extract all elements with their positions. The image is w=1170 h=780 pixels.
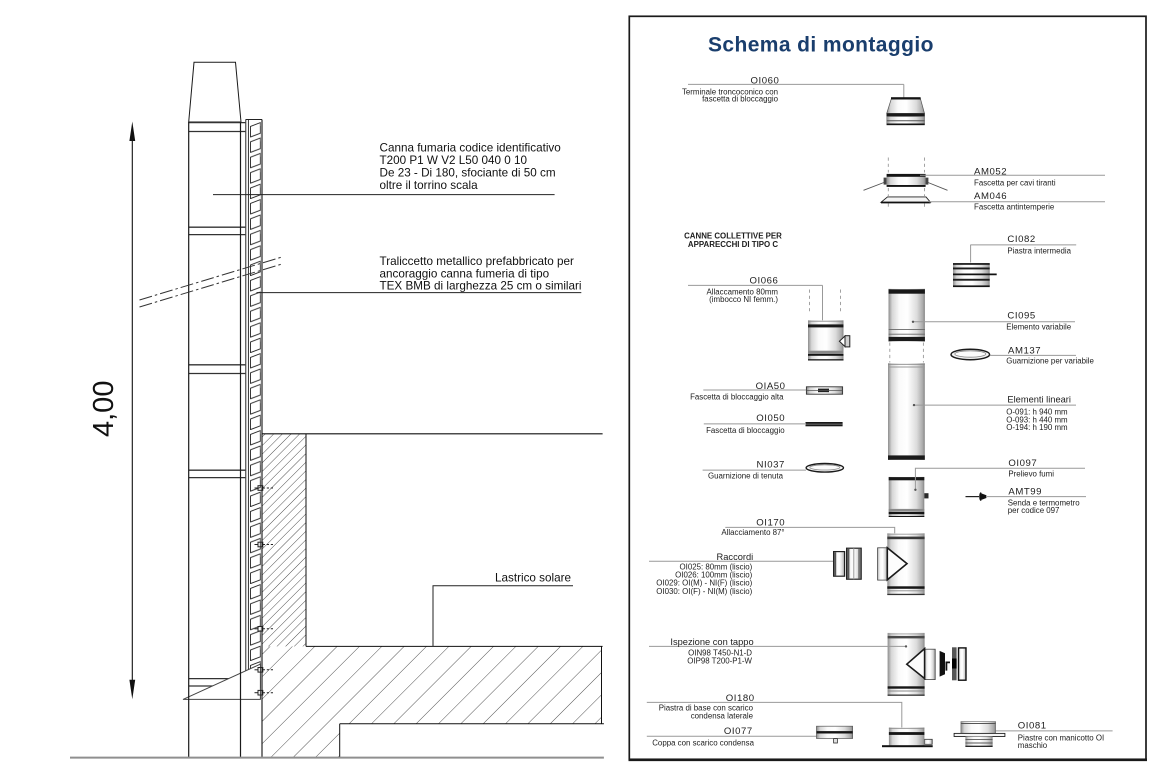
svg-text:T200 P1 W V2 L50 040 0 10: T200 P1 W V2 L50 040 0 10 bbox=[380, 154, 528, 167]
svg-text:Allacciamento 87°: Allacciamento 87° bbox=[721, 528, 784, 537]
svg-text:De 23 - Di 180, sfociante di 5: De 23 - Di 180, sfociante di 50 cm bbox=[380, 167, 556, 180]
svg-text:(imbocco NI femm.): (imbocco NI femm.) bbox=[709, 295, 778, 304]
svg-text:Fascetta antintemperie: Fascetta antintemperie bbox=[974, 202, 1055, 211]
svg-text:OI030: OI(F) - NI(M) (liscio): OI030: OI(F) - NI(M) (liscio) bbox=[656, 587, 752, 596]
svg-text:O-194: h 190 mm: O-194: h 190 mm bbox=[1006, 423, 1068, 432]
svg-text:Ispezione con tappo: Ispezione con tappo bbox=[670, 637, 753, 647]
svg-text:AM046: AM046 bbox=[974, 191, 1007, 202]
svg-text:OI077: OI077 bbox=[724, 726, 753, 737]
svg-text:OI170: OI170 bbox=[756, 518, 785, 529]
svg-text:CI082: CI082 bbox=[1007, 234, 1035, 245]
svg-text:condensa laterale: condensa laterale bbox=[691, 711, 754, 720]
svg-text:Prelievo fumi: Prelievo fumi bbox=[1008, 470, 1054, 479]
svg-text:OIP98 T200-P1-W: OIP98 T200-P1-W bbox=[687, 657, 752, 666]
svg-text:4,00: 4,00 bbox=[88, 381, 120, 437]
svg-text:oltre il torrino scala: oltre il torrino scala bbox=[380, 179, 479, 192]
svg-text:OIA50: OIA50 bbox=[756, 381, 786, 392]
svg-text:Piastra intermedia: Piastra intermedia bbox=[1007, 246, 1071, 255]
svg-text:APPARECCHI DI TIPO C: APPARECCHI DI TIPO C bbox=[688, 240, 778, 249]
svg-text:fascetta di bloccaggio: fascetta di bloccaggio bbox=[702, 95, 778, 104]
svg-text:Fascetta di bloccaggio: Fascetta di bloccaggio bbox=[706, 426, 785, 435]
svg-text:AM052: AM052 bbox=[974, 166, 1007, 177]
svg-text:OI050: OI050 bbox=[756, 413, 785, 424]
svg-text:Canna fumaria codice identific: Canna fumaria codice identificativo bbox=[380, 142, 562, 155]
svg-text:Lastrico solare: Lastrico solare bbox=[495, 572, 571, 585]
svg-text:AMT99: AMT99 bbox=[1008, 487, 1042, 498]
svg-text:Elementi lineari: Elementi lineari bbox=[1007, 395, 1071, 405]
svg-text:Fascetta per cavi tiranti: Fascetta per cavi tiranti bbox=[974, 179, 1056, 188]
svg-text:Fascetta di bloccaggio alta: Fascetta di bloccaggio alta bbox=[690, 393, 784, 402]
svg-text:NI037: NI037 bbox=[757, 460, 785, 471]
svg-text:Guarnizione per variabile: Guarnizione per variabile bbox=[1006, 357, 1094, 366]
svg-text:per codice 097: per codice 097 bbox=[1008, 506, 1060, 515]
svg-text:Coppa con scarico condensa: Coppa con scarico condensa bbox=[652, 739, 754, 748]
svg-text:OI081: OI081 bbox=[1018, 721, 1047, 732]
svg-text:Schema di montaggio: Schema di montaggio bbox=[708, 34, 934, 57]
svg-text:OI060: OI060 bbox=[751, 75, 780, 86]
svg-text:Raccordi: Raccordi bbox=[717, 552, 754, 562]
svg-text:maschio: maschio bbox=[1018, 741, 1048, 750]
svg-text:OI066: OI066 bbox=[750, 275, 779, 286]
svg-text:OI097: OI097 bbox=[1008, 458, 1037, 469]
svg-text:Traliccetto metallico prefabbr: Traliccetto metallico prefabbricato per bbox=[380, 255, 575, 268]
svg-text:TEX BMB di larghezza 25 cm o s: TEX BMB di larghezza 25 cm o similari bbox=[380, 280, 582, 293]
svg-text:OI180: OI180 bbox=[726, 693, 755, 704]
svg-text:AM137: AM137 bbox=[1008, 345, 1041, 356]
svg-text:CI095: CI095 bbox=[1007, 311, 1035, 322]
svg-text:ancoraggio canna fumeria di ti: ancoraggio canna fumeria di tipo bbox=[380, 267, 550, 280]
svg-text:Guarnizione di tenuta: Guarnizione di tenuta bbox=[708, 472, 784, 481]
svg-text:Elemento variabile: Elemento variabile bbox=[1006, 323, 1072, 332]
